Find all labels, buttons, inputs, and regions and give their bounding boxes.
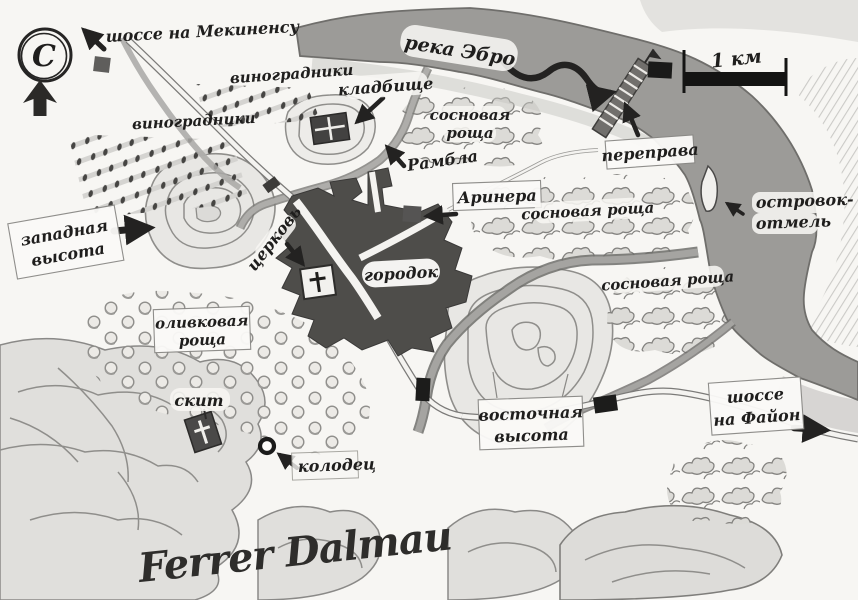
south-hill-2 xyxy=(448,509,576,600)
label-town: городок xyxy=(364,262,439,285)
label-pine-north-1: сосновая xyxy=(430,106,511,124)
pine-grove-southeast xyxy=(667,440,787,525)
label-east-height-2: высота xyxy=(494,425,569,447)
label-islet-2: отмель xyxy=(755,211,831,233)
label-well: колодец xyxy=(297,454,376,476)
label-olive-1: оливковая xyxy=(155,311,249,332)
label-east-height-1: восточная xyxy=(478,402,583,425)
hand-drawn-map: С 1 км шоссе на Мекиненсу виноградники в… xyxy=(0,0,858,600)
arrow-mequinenza xyxy=(85,31,104,49)
map-drawing: С 1 км шоссе на Мекиненсу виноградники в… xyxy=(0,0,858,600)
bridge-fayon-icon xyxy=(593,394,618,413)
bridge-south-icon xyxy=(415,378,430,402)
north-arrow-icon xyxy=(23,80,57,116)
label-fayon-1: шоссе xyxy=(726,384,784,407)
building-square-nw xyxy=(93,56,111,73)
arinera-square xyxy=(402,205,421,222)
arrow-rambla xyxy=(388,148,404,166)
scale-label: 1 км xyxy=(710,45,763,72)
church-icon xyxy=(300,265,336,299)
label-vineyards-top: виноградники xyxy=(229,61,354,88)
label-olive-2: роща xyxy=(178,330,226,350)
compass-icon: С xyxy=(19,29,71,116)
label-arinera: Аринера xyxy=(456,186,537,208)
label-pine-north-2: роща xyxy=(446,124,493,142)
label-vineyards-left: виноградники xyxy=(132,109,257,133)
compass-letter: С xyxy=(32,39,56,74)
label-hermitage: скит xyxy=(174,391,223,410)
label-islet-1: островок- xyxy=(755,190,853,212)
label-mequinenza: шоссе на Мекиненсу xyxy=(105,17,301,46)
well-icon xyxy=(260,439,274,453)
arrow-arinera xyxy=(428,214,456,216)
building-square-ferry xyxy=(648,61,673,78)
cemetery-icon xyxy=(310,113,349,145)
